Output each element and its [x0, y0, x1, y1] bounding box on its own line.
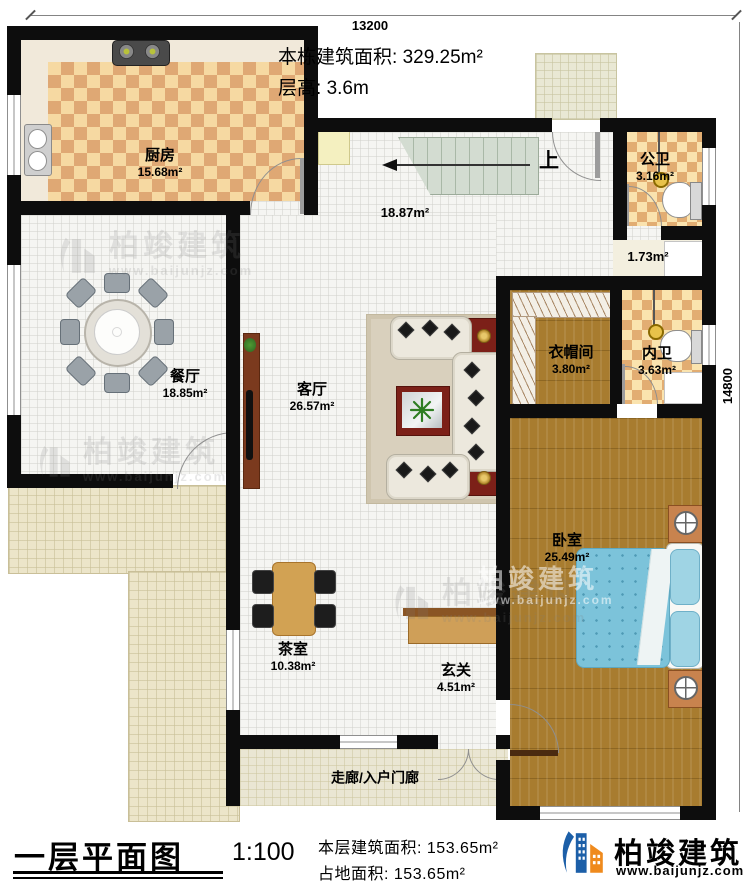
- window: [226, 630, 240, 710]
- land-area-value: 153.65m²: [394, 866, 466, 883]
- sink-basin-icon: [28, 151, 47, 171]
- dimension-line-top: [30, 15, 737, 16]
- kitchen-label: 厨房 15.68m²: [138, 147, 183, 179]
- inner-bath-door-leaf: [622, 364, 625, 404]
- toilet-tank-icon: [690, 182, 702, 220]
- wardrobe-rack-icon: [512, 292, 612, 318]
- wall: [496, 760, 510, 820]
- title-underline: [13, 877, 223, 879]
- land-area-line: 占地面积: 153.65m²: [318, 860, 466, 884]
- wall: [613, 226, 627, 240]
- stair-up-label: 上: [539, 149, 559, 173]
- dimension-right-value: 14800: [720, 368, 735, 404]
- stove-burner-icon: [145, 44, 160, 59]
- corridor-label: 走廊/入户门廊: [331, 770, 419, 787]
- wall: [496, 418, 510, 700]
- wall: [318, 118, 552, 132]
- window: [702, 325, 716, 365]
- room-area: 3.16m²: [636, 169, 674, 183]
- brand-url: www.baijunjz.com: [616, 863, 744, 878]
- wall: [496, 276, 716, 290]
- bedroom-label: 卧室 25.49m²: [545, 532, 590, 564]
- tea-table-icon: [272, 562, 316, 636]
- room-name: 厨房: [138, 147, 183, 165]
- room-name: 玄关: [437, 662, 475, 680]
- floor-height-label: 层高:: [278, 78, 321, 99]
- pendant-light-icon: [648, 324, 664, 340]
- window: [540, 806, 680, 820]
- tea-room-label: 茶室 10.38m²: [271, 641, 316, 673]
- floor-area-label: 本层建筑面积:: [318, 840, 422, 857]
- floor-area-line: 本层建筑面积: 153.65m²: [318, 834, 499, 858]
- window: [340, 735, 397, 749]
- tea-chair-icon: [314, 570, 336, 594]
- wall: [7, 201, 250, 215]
- floor-height-line: 层高: 3.6m: [278, 73, 483, 104]
- bed-pillow-icon: [670, 611, 700, 667]
- room-area: 10.38m²: [271, 659, 316, 673]
- wall: [496, 276, 510, 418]
- title-underline: [13, 871, 223, 874]
- shoe-cabinet-top: [403, 608, 500, 616]
- stove-burner-icon: [119, 44, 134, 59]
- toilet-tank-icon: [691, 330, 702, 364]
- hall-area-label: 18.87m²: [381, 205, 429, 221]
- dining-chair-icon: [60, 319, 80, 345]
- room-area: 26.57m²: [290, 399, 335, 413]
- wall: [240, 735, 340, 749]
- room-name: 走廊/入户门廊: [331, 770, 419, 787]
- wall: [226, 215, 240, 630]
- building-area-line: 本栋建筑面积: 329.25m²: [278, 42, 483, 73]
- patio-upper: [8, 485, 240, 574]
- header-stats: 本栋建筑面积: 329.25m² 层高: 3.6m: [278, 42, 483, 105]
- bedroom-door-leaf: [510, 750, 558, 756]
- bed-pillow-icon: [670, 549, 700, 605]
- room-name: 餐厅: [163, 368, 208, 386]
- room-name: 公卫: [636, 151, 674, 169]
- fridge-icon: [318, 130, 350, 165]
- wall: [661, 226, 702, 240]
- inner-bath-label: 内卫 3.63m²: [638, 345, 676, 377]
- patio-lower: [128, 571, 240, 822]
- room-name: 衣帽间: [548, 344, 593, 362]
- tea-chair-icon: [314, 604, 336, 628]
- pendant-cord-icon: [653, 290, 655, 328]
- wall: [496, 404, 617, 418]
- table-center-icon: [112, 327, 122, 337]
- room-area: 4.51m²: [437, 680, 475, 694]
- vanity-counter-icon: [664, 241, 703, 277]
- land-area-label: 占地面积:: [318, 866, 389, 883]
- wall: [613, 118, 627, 240]
- wall: [226, 710, 240, 806]
- room-area: 18.87m²: [381, 205, 429, 221]
- sink-basin-icon: [28, 129, 47, 149]
- dimension-line-right: [739, 22, 740, 812]
- wall: [702, 118, 716, 820]
- room-area: 15.68m²: [138, 165, 183, 179]
- room-name: 内卫: [638, 345, 676, 363]
- foyer-label: 玄关 4.51m²: [437, 662, 475, 694]
- dimension-top-value: 13200: [330, 18, 410, 33]
- room-name: 卧室: [545, 532, 590, 550]
- room-area: 3.63m²: [638, 363, 676, 377]
- wall: [496, 735, 510, 749]
- room-area: 1.73m²: [627, 249, 668, 265]
- room-area: 18.85m²: [163, 386, 208, 400]
- side-table-decor-icon: [477, 471, 491, 485]
- plant-icon: [409, 397, 435, 423]
- floor-height-value: 3.6m: [327, 78, 369, 99]
- wall: [7, 26, 318, 40]
- dining-chair-icon: [104, 373, 130, 393]
- living-label: 客厅 26.57m²: [290, 381, 335, 413]
- tea-chair-icon: [252, 604, 274, 628]
- basin-area-label: 1.73m²: [627, 249, 668, 265]
- side-table-decor-icon: [477, 329, 491, 343]
- window: [7, 95, 21, 175]
- public-bath-label: 公卫 3.16m²: [636, 151, 674, 183]
- cloakroom-label: 衣帽间 3.80m²: [548, 344, 593, 376]
- lamp-icon: [674, 676, 698, 700]
- plan-scale: 1:100: [232, 838, 295, 867]
- floor-plan-canvas: 13200 14800 本栋建筑面积: 329.25m² 层高: 3.6m 上: [0, 0, 750, 884]
- room-area: 25.49m²: [545, 550, 590, 564]
- wardrobe-rack-icon: [512, 316, 536, 406]
- north-entry-door-leaf: [595, 132, 600, 178]
- tv-icon: [246, 390, 253, 460]
- stair-arrow-icon: [382, 159, 397, 171]
- dining-chair-icon: [104, 273, 130, 293]
- room-name: 茶室: [271, 641, 316, 659]
- room-area: 3.80m²: [548, 362, 593, 376]
- shoe-cabinet-icon: [408, 616, 502, 644]
- entry-porch: [535, 53, 617, 120]
- dining-label: 餐厅 18.85m²: [163, 368, 208, 400]
- plant-icon: [244, 338, 256, 352]
- building-area-label: 本栋建筑面积:: [278, 47, 397, 68]
- stair-direction-line: [396, 164, 530, 166]
- building-area-value: 329.25m²: [403, 47, 483, 68]
- floor-area-value: 153.65m²: [427, 840, 499, 857]
- window: [7, 265, 21, 415]
- room-name: 客厅: [290, 381, 335, 399]
- dining-chair-icon: [154, 319, 174, 345]
- tea-chair-icon: [252, 570, 274, 594]
- wall: [7, 474, 173, 488]
- window: [702, 148, 716, 205]
- lamp-icon: [674, 511, 698, 535]
- wall: [397, 735, 438, 749]
- wall: [610, 290, 622, 404]
- brand-logo-icon: [556, 826, 610, 880]
- wall: [657, 404, 716, 418]
